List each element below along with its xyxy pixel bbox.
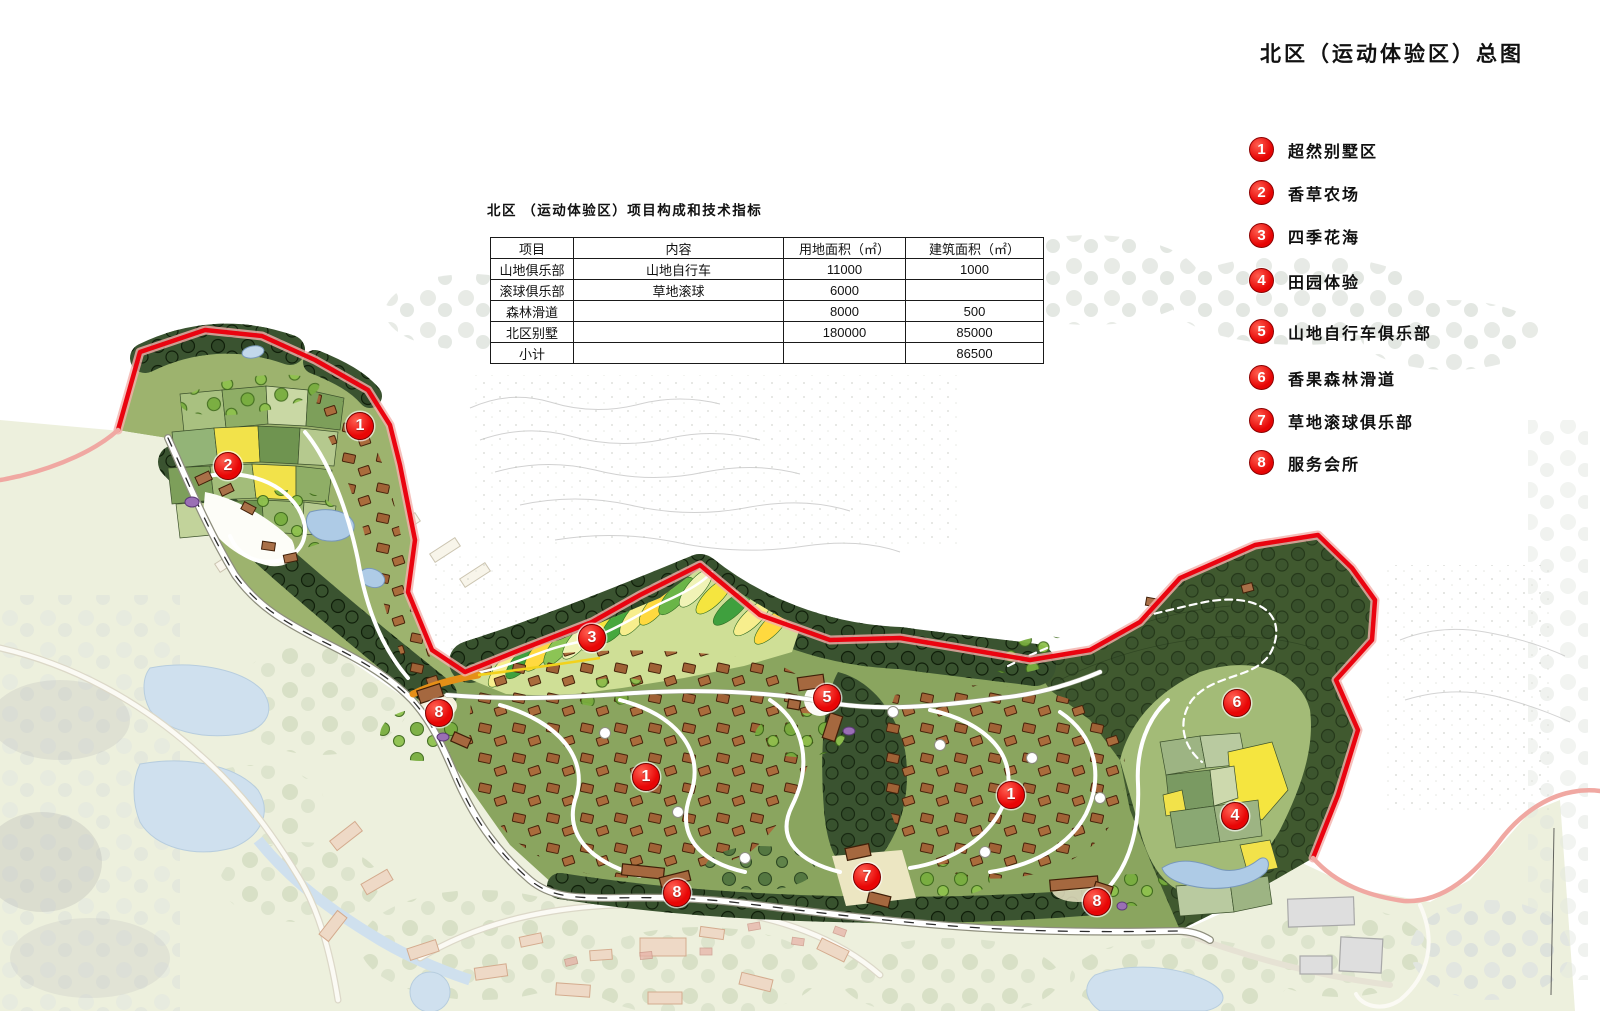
- legend-label: 山地自行车俱乐部: [1288, 320, 1432, 344]
- map-marker-8: 8: [663, 879, 691, 907]
- map-marker-8: 8: [425, 699, 453, 727]
- table-row: 森林滑道8000500: [491, 301, 1044, 322]
- speckle-west-bay: [470, 375, 960, 550]
- table-cell: 6000: [784, 280, 906, 301]
- legend-item-5: 5山地自行车俱乐部: [1249, 319, 1432, 344]
- table-cell: [574, 343, 784, 364]
- legend-number-badge: 4: [1249, 268, 1274, 293]
- table-cell: [574, 322, 784, 343]
- table-row: 滚球俱乐部草地滚球6000: [491, 280, 1044, 301]
- legend-label: 田园体验: [1288, 269, 1360, 293]
- indicator-table: 项目内容用地面积（㎡）建筑面积（㎡） 山地俱乐部山地自行车110001000滚球…: [490, 237, 1044, 364]
- map-marker-2: 2: [214, 452, 242, 480]
- map-marker-8: 8: [1083, 888, 1111, 916]
- table-cell: 滚球俱乐部: [491, 280, 574, 301]
- map-marker-1: 1: [346, 412, 374, 440]
- column-header: 项目: [491, 238, 574, 259]
- legend-item-6: 6香果森林滑道: [1249, 365, 1396, 390]
- legend-label: 四季花海: [1288, 224, 1360, 248]
- table-cell: 山地俱乐部: [491, 259, 574, 280]
- legend-number-badge: 2: [1249, 180, 1274, 205]
- legend-item-8: 8服务会所: [1249, 450, 1360, 475]
- legend-label: 服务会所: [1288, 451, 1360, 475]
- speckle-ne-bay: [1385, 565, 1555, 815]
- table-cell: [784, 343, 906, 364]
- table-cell: 11000: [784, 259, 906, 280]
- legend-label: 香果森林滑道: [1288, 366, 1396, 390]
- map-marker-4: 4: [1221, 802, 1249, 830]
- legend-number-badge: 1: [1249, 137, 1274, 162]
- table-row: 山地俱乐部山地自行车110001000: [491, 259, 1044, 280]
- legend-item-2: 2香草农场: [1249, 180, 1360, 205]
- plan-sheet: 北区（运动体验区）总图 1超然别墅区2香草农场3四季花海4田园体验5山地自行车俱…: [0, 0, 1600, 1011]
- column-header: 用地面积（㎡）: [784, 238, 906, 259]
- legend-label: 草地滚球俱乐部: [1288, 409, 1414, 433]
- legend-label: 超然别墅区: [1288, 138, 1378, 162]
- table-cell: 86500: [906, 343, 1044, 364]
- table-cell: 180000: [784, 322, 906, 343]
- map-marker-1: 1: [632, 763, 660, 791]
- legend-number-badge: 8: [1249, 450, 1274, 475]
- table-row: 小计86500: [491, 343, 1044, 364]
- legend-item-4: 4田园体验: [1249, 268, 1360, 293]
- table-cell: [574, 301, 784, 322]
- column-header: 建筑面积（㎡）: [906, 238, 1044, 259]
- legend-label: 香草农场: [1288, 181, 1360, 205]
- legend-number-badge: 6: [1249, 365, 1274, 390]
- indicator-table-head: 项目内容用地面积（㎡）建筑面积（㎡）: [491, 238, 1044, 259]
- table-cell: 草地滚球: [574, 280, 784, 301]
- map-marker-7: 7: [853, 863, 881, 891]
- table-row: 北区别墅18000085000: [491, 322, 1044, 343]
- legend-item-7: 7草地滚球俱乐部: [1249, 408, 1414, 433]
- table-cell: 1000: [906, 259, 1044, 280]
- indicator-table-body: 山地俱乐部山地自行车110001000滚球俱乐部草地滚球6000森林滑道8000…: [491, 259, 1044, 364]
- table-cell: 小计: [491, 343, 574, 364]
- map-marker-5: 5: [813, 684, 841, 712]
- column-header: 内容: [574, 238, 784, 259]
- table-cell: 山地自行车: [574, 259, 784, 280]
- table-cell: 8000: [784, 301, 906, 322]
- table-cell: 北区别墅: [491, 322, 574, 343]
- legend-number-badge: 3: [1249, 223, 1274, 248]
- legend-item-1: 1超然别墅区: [1249, 137, 1378, 162]
- table-cell: 500: [906, 301, 1044, 322]
- map-marker-3: 3: [578, 624, 606, 652]
- map-marker-1: 1: [997, 781, 1025, 809]
- table-cell: 森林滑道: [491, 301, 574, 322]
- map-marker-6: 6: [1223, 689, 1251, 717]
- legend-item-3: 3四季花海: [1249, 223, 1360, 248]
- table-cell: 85000: [906, 322, 1044, 343]
- legend-number-badge: 7: [1249, 408, 1274, 433]
- table-caption: 北区 （运动体验区）项目构成和技术指标: [487, 199, 762, 219]
- legend: 1超然别墅区2香草农场3四季花海4田园体验5山地自行车俱乐部6香果森林滑道7草地…: [1249, 12, 1579, 492]
- table-cell: [906, 280, 1044, 301]
- legend-number-badge: 5: [1249, 319, 1274, 344]
